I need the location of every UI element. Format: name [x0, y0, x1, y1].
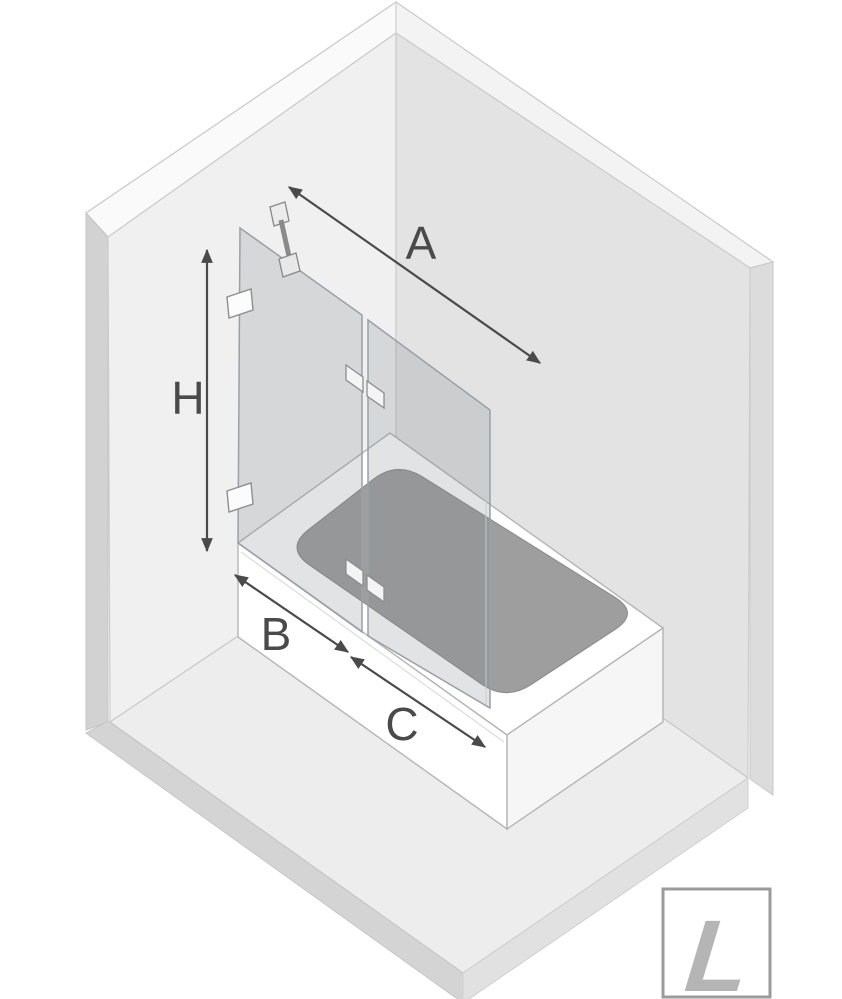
bath-screen-dimension-diagram: A H B C L [0, 0, 842, 999]
wall-outer-band-left [86, 213, 108, 730]
brand-logo: L [663, 889, 770, 999]
dimension-label-b: B [261, 608, 292, 660]
dimension-label-c: C [385, 698, 418, 750]
logo-letter: L [681, 898, 755, 999]
diagram-canvas: A H B C L [0, 0, 842, 999]
dimension-label-h: H [171, 372, 204, 424]
wall-outer-band-right [750, 262, 773, 795]
dimension-label-a: A [406, 217, 437, 269]
